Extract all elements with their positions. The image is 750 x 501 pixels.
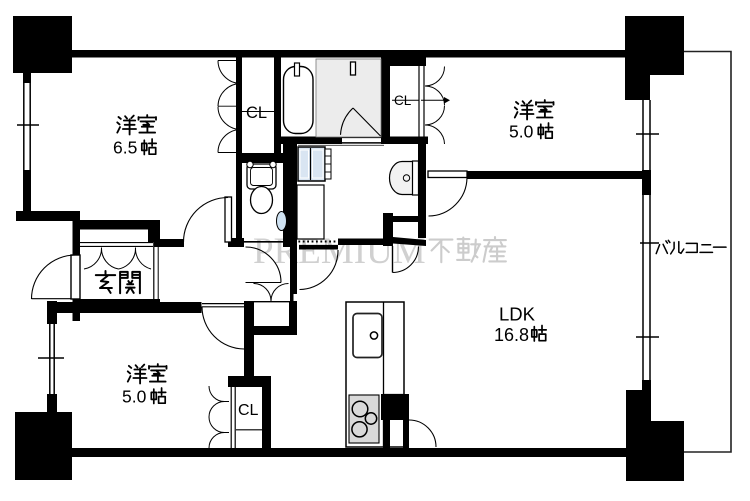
svg-text:5.0: 5.0 [122,387,147,407]
svg-text:PREMIUM: PREMIUM [253,231,426,272]
svg-text:LDK: LDK [499,304,536,325]
svg-text:6.5: 6.5 [113,138,137,158]
svg-text:5.0: 5.0 [509,122,534,142]
svg-text:CL: CL [238,402,259,419]
svg-text:16.8: 16.8 [494,325,529,345]
svg-text:CL: CL [246,104,267,122]
